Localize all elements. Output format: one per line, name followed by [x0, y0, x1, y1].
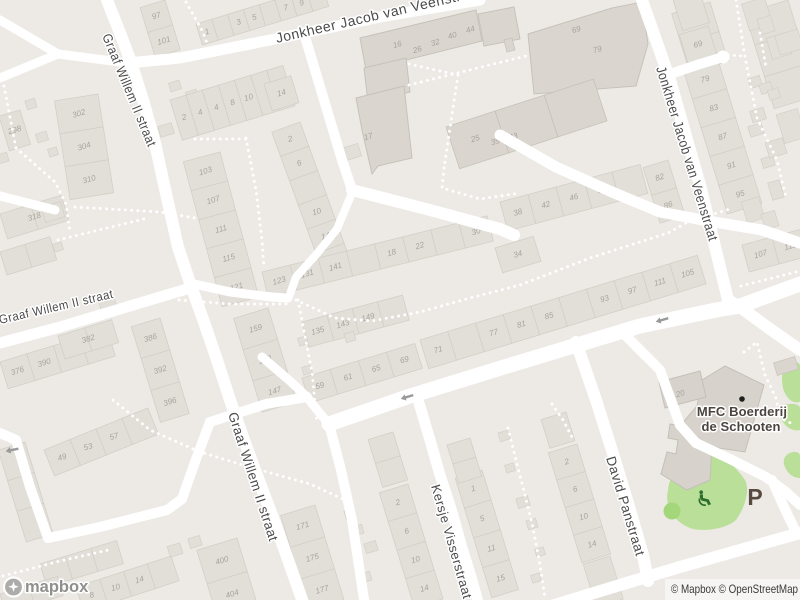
svg-text:MFC Boerderij: MFC Boerderij — [697, 404, 787, 419]
svg-text:de Schooten: de Schooten — [701, 419, 780, 434]
svg-text:© Mapbox © OpenStreetMap: © Mapbox © OpenStreetMap — [671, 582, 798, 596]
svg-text:mapbox: mapbox — [25, 578, 89, 596]
svg-text:P: P — [747, 484, 762, 510]
